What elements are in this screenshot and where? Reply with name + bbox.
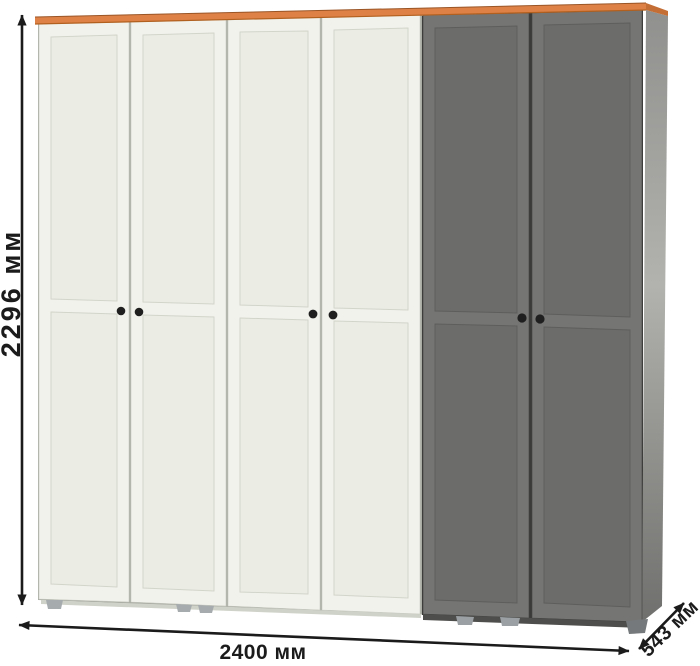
door-upper-panel: [51, 35, 117, 301]
door-upper-panel: [435, 26, 517, 313]
wardrobe-foot: [46, 600, 63, 609]
door-knob: [329, 311, 338, 320]
door-upper-panel: [334, 28, 408, 310]
wardrobe-illustration: 2296 мм 2400 мм 543 мм: [0, 0, 700, 666]
door-upper-panel: [143, 33, 214, 304]
door-lower-panel: [334, 321, 408, 598]
width-dimension-label: 2400 мм: [219, 641, 306, 664]
wardrobe-door-2: [131, 20, 226, 606]
door-lower-panel: [143, 315, 214, 591]
door-knob: [535, 314, 544, 323]
product-dimension-figure: 2296 мм 2400 мм 543 мм: [0, 0, 700, 666]
door-knob: [117, 307, 126, 316]
door-lower-panel: [51, 312, 117, 587]
wardrobe-foot: [456, 616, 474, 625]
door-upper-panel: [544, 23, 630, 317]
wardrobe-door-3: [228, 17, 320, 610]
door-lower-panel: [435, 324, 517, 603]
wardrobe-side-panel: [642, 10, 668, 622]
door-upper-panel: [240, 31, 308, 307]
door-lower-panel: [240, 318, 308, 594]
door-lower-panel: [544, 327, 630, 607]
wardrobe-foot: [176, 604, 192, 612]
wardrobe-door-1: [39, 22, 129, 602]
width-dimension-arrow: [19, 625, 629, 651]
door-knob: [517, 313, 526, 322]
door-knob: [135, 308, 144, 317]
wardrobe-door-5: [423, 13, 529, 618]
wardrobe-foot: [500, 617, 520, 626]
door-knob: [309, 310, 318, 319]
height-dimension-label: 2296 мм: [0, 229, 26, 358]
wardrobe-foot: [626, 619, 648, 634]
wardrobe-foot: [198, 605, 214, 613]
wardrobe-door-6: [532, 10, 642, 622]
